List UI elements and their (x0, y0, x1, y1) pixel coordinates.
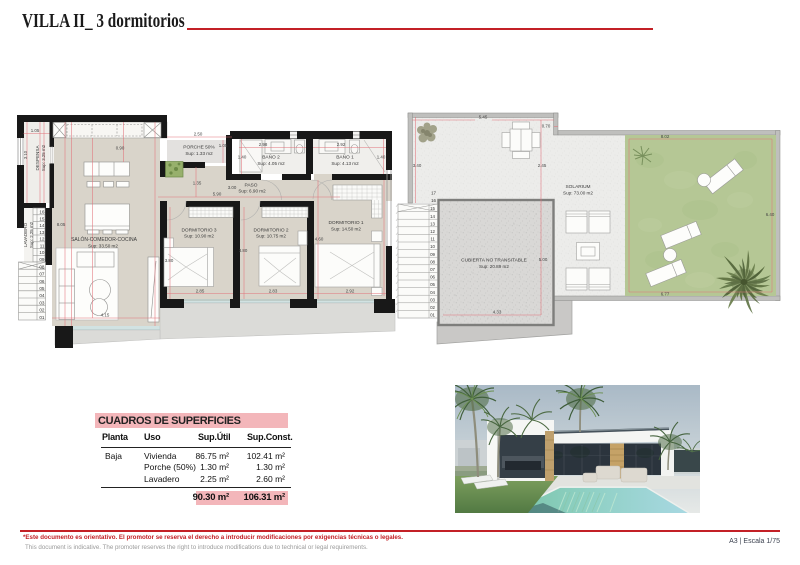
svg-text:04: 04 (39, 293, 45, 298)
svg-text:02: 02 (430, 305, 435, 310)
svg-text:Sup: 1.33 m2: Sup: 1.33 m2 (185, 151, 213, 156)
svg-text:11: 11 (430, 237, 435, 242)
svg-text:3.80: 3.80 (239, 248, 248, 253)
svg-text:2.50: 2.50 (194, 132, 203, 137)
svg-text:07: 07 (39, 272, 45, 277)
svg-text:8.02: 8.02 (661, 134, 670, 139)
svg-text:4.15: 4.15 (101, 313, 110, 318)
svg-text:2.83: 2.83 (269, 289, 278, 294)
svg-text:5.90: 5.90 (213, 192, 222, 197)
svg-text:Sup: 14.50 m2: Sup: 14.50 m2 (331, 227, 361, 232)
svg-text:13: 13 (39, 230, 45, 235)
svg-text:Sup: 2.25 m2: Sup: 2.25 m2 (29, 221, 34, 248)
svg-text:3.40: 3.40 (413, 163, 422, 168)
svg-text:CUBIERTA NO TRANSITABLE: CUBIERTA NO TRANSITABLE (461, 258, 527, 264)
svg-text:08: 08 (39, 264, 45, 269)
svg-text:2.85: 2.85 (196, 289, 205, 294)
svg-text:03: 03 (430, 297, 435, 302)
svg-text:04: 04 (430, 290, 435, 295)
svg-text:2.45: 2.45 (538, 163, 547, 168)
svg-text:BAÑO 2: BAÑO 2 (262, 154, 280, 161)
svg-text:14: 14 (39, 223, 45, 228)
svg-text:Sup: 20.89 m2: Sup: 20.89 m2 (479, 264, 509, 269)
svg-text:06: 06 (430, 275, 435, 280)
svg-text:5.45: 5.45 (479, 115, 488, 120)
svg-text:12: 12 (39, 237, 45, 242)
svg-text:01: 01 (39, 315, 45, 320)
svg-text:03: 03 (39, 300, 45, 305)
svg-text:6.77: 6.77 (661, 292, 670, 297)
svg-text:4.33: 4.33 (493, 310, 502, 315)
svg-text:06: 06 (39, 279, 45, 284)
svg-text:05: 05 (39, 286, 45, 291)
svg-text:PORCHE 50%: PORCHE 50% (183, 145, 215, 151)
svg-text:10: 10 (39, 250, 45, 255)
svg-text:Sup: 10.90 m2: Sup: 10.90 m2 (184, 234, 214, 239)
svg-text:07: 07 (430, 267, 435, 272)
svg-text:12: 12 (430, 229, 435, 234)
svg-text:16: 16 (39, 210, 45, 215)
svg-text:2.92: 2.92 (346, 289, 355, 294)
svg-text:Sup: 73.00 m2: Sup: 73.00 m2 (563, 191, 593, 196)
svg-text:15: 15 (39, 216, 45, 221)
svg-text:02: 02 (39, 308, 45, 313)
svg-text:1.35: 1.35 (193, 181, 202, 186)
svg-text:13: 13 (430, 221, 435, 226)
svg-text:LAVADERO: LAVADERO (23, 222, 28, 247)
svg-text:10: 10 (430, 244, 435, 249)
svg-text:SOLARIUM: SOLARIUM (565, 184, 590, 190)
svg-text:BAÑO 1: BAÑO 1 (336, 154, 354, 161)
svg-text:1.40: 1.40 (377, 155, 386, 160)
svg-text:09: 09 (430, 252, 435, 257)
svg-text:6.40: 6.40 (766, 212, 775, 217)
svg-text:Sup: 4.05 m2: Sup: 4.05 m2 (257, 161, 285, 166)
svg-text:Sup: 6.90 m2: Sup: 6.90 m2 (238, 189, 266, 194)
svg-text:4.60: 4.60 (315, 237, 324, 242)
svg-text:3.00: 3.00 (228, 185, 237, 190)
svg-text:1.05: 1.05 (31, 128, 40, 133)
svg-text:Sup: 33.50 m2: Sup: 33.50 m2 (88, 244, 118, 249)
svg-text:Sup: 3.25 m2: Sup: 3.25 m2 (41, 144, 46, 171)
svg-text:1.05: 1.05 (219, 143, 228, 148)
svg-text:14: 14 (430, 214, 435, 219)
svg-text:17: 17 (431, 191, 436, 196)
svg-text:0.90: 0.90 (116, 146, 125, 151)
svg-text:1.40: 1.40 (238, 155, 247, 160)
svg-text:16: 16 (431, 198, 436, 203)
svg-text:3.80: 3.80 (165, 258, 174, 263)
svg-text:DESPENSA: DESPENSA (35, 145, 40, 171)
svg-text:09: 09 (39, 257, 45, 262)
svg-text:SALÓN-COMEDOR-COCINA: SALÓN-COMEDOR-COCINA (71, 236, 138, 243)
svg-text:DORMITORIO 1: DORMITORIO 1 (328, 220, 363, 226)
svg-text:Sup: 4.13 m2: Sup: 4.13 m2 (331, 161, 359, 166)
svg-text:3.10: 3.10 (23, 150, 28, 159)
svg-text:01: 01 (430, 313, 435, 318)
svg-text:2.98: 2.98 (259, 142, 268, 147)
svg-text:05: 05 (430, 282, 435, 287)
svg-text:15: 15 (430, 206, 435, 211)
svg-text:2.92: 2.92 (337, 142, 346, 147)
svg-text:0.70: 0.70 (542, 124, 551, 129)
svg-text:Sup: 10.75 m2: Sup: 10.75 m2 (256, 234, 286, 239)
svg-text:5.00: 5.00 (539, 257, 548, 262)
svg-text:08: 08 (430, 259, 435, 264)
svg-text:8.05: 8.05 (57, 222, 66, 227)
svg-text:11: 11 (40, 243, 45, 248)
